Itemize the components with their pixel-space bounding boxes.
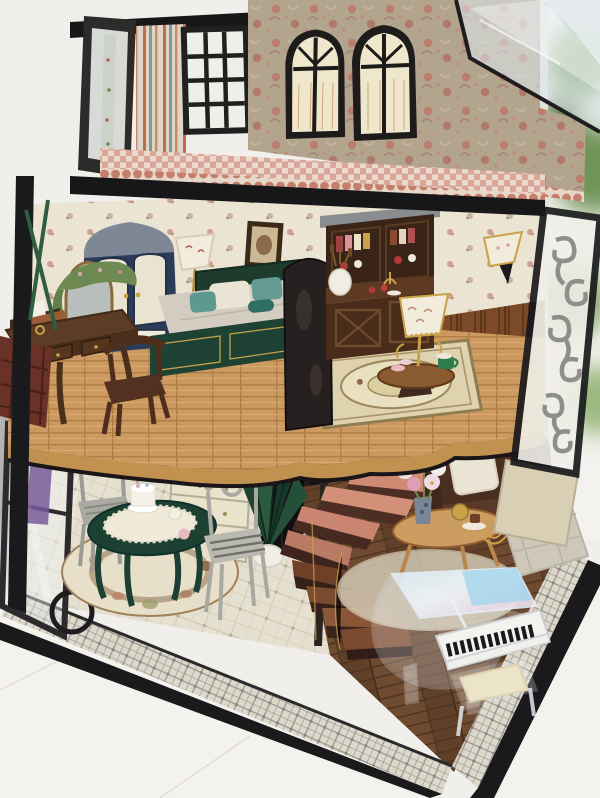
dollhouse-photo: [0, 0, 600, 798]
scene-canvas: [0, 0, 600, 798]
teal-pillow: [189, 291, 217, 313]
lamp-shade: [400, 294, 448, 337]
top-floor: [70, 0, 600, 216]
pink-plate: [179, 529, 190, 540]
lattice-window: [181, 25, 252, 135]
arched-window-left: [284, 29, 347, 140]
striped-wall: [136, 24, 186, 166]
cocoa-cup: [470, 514, 480, 523]
arched-window-right: [352, 25, 417, 141]
teapot: [169, 508, 181, 520]
gold-teapot: [452, 504, 468, 520]
cake: [128, 483, 158, 513]
purple-object: [26, 465, 52, 524]
arch-divider: [284, 259, 332, 430]
hutch: [320, 205, 440, 360]
